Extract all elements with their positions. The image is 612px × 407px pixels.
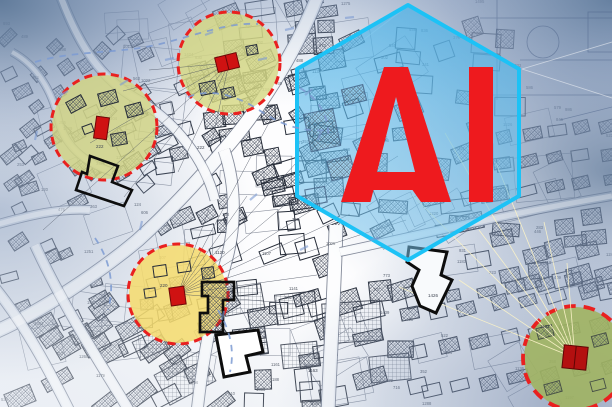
svg-text:1120: 1120 <box>215 250 225 255</box>
svg-text:222: 222 <box>96 144 104 149</box>
svg-text:222: 222 <box>197 145 205 150</box>
svg-text:1426: 1426 <box>428 293 439 298</box>
svg-text:1131: 1131 <box>540 324 550 329</box>
svg-text:1163: 1163 <box>308 368 318 373</box>
svg-text:220: 220 <box>160 283 168 288</box>
